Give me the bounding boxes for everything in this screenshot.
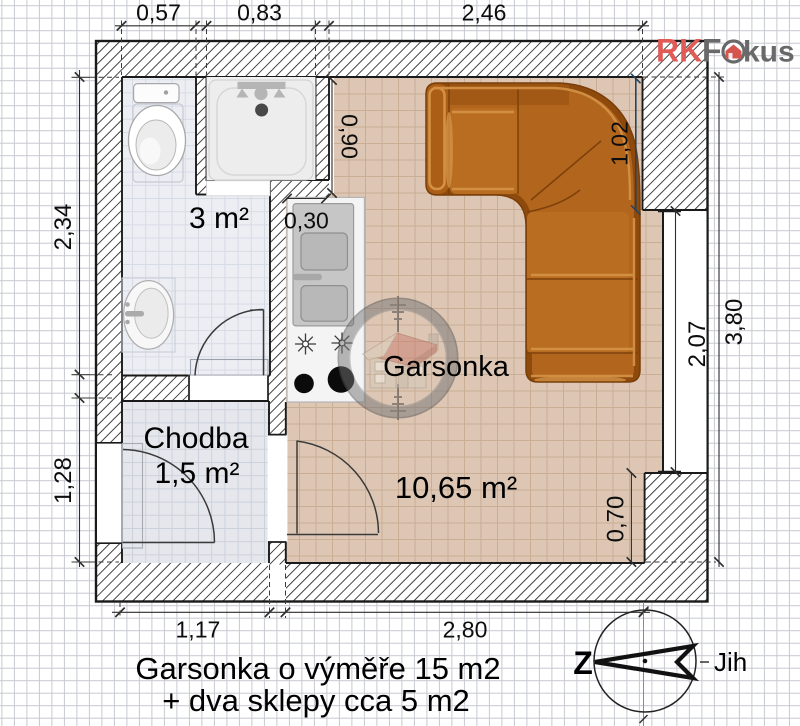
svg-text:1,5 m²: 1,5 m² xyxy=(154,457,239,490)
svg-text:Garsonka o výměře 15 m2: Garsonka o výměře 15 m2 xyxy=(135,651,500,686)
svg-text:2,34: 2,34 xyxy=(50,204,77,251)
svg-text:3 m²: 3 m² xyxy=(189,202,249,235)
svg-text:1,28: 1,28 xyxy=(50,457,77,504)
svg-text:Chodba: Chodba xyxy=(143,422,248,455)
svg-text:+ dva sklepy cca 5 m2: + dva sklepy cca 5 m2 xyxy=(162,683,470,718)
svg-text:Z: Z xyxy=(573,645,593,681)
svg-text:F: F xyxy=(702,33,722,69)
svg-text:2,46: 2,46 xyxy=(462,0,507,26)
svg-text:10,65 m²: 10,65 m² xyxy=(395,470,517,505)
svg-text:3,80: 3,80 xyxy=(721,299,748,346)
svg-text:RK: RK xyxy=(656,33,702,69)
svg-text:Garsonka: Garsonka xyxy=(383,351,510,383)
svg-text:2,07: 2,07 xyxy=(684,321,711,368)
svg-text:0,30: 0,30 xyxy=(284,207,329,233)
svg-text:Jih: Jih xyxy=(714,647,747,677)
svg-text:0,70: 0,70 xyxy=(603,496,630,543)
svg-text:0,90: 0,90 xyxy=(337,114,363,159)
svg-text:2,80: 2,80 xyxy=(443,617,488,643)
svg-text:0,57: 0,57 xyxy=(136,0,181,26)
svg-text:1,02: 1,02 xyxy=(607,121,633,166)
svg-text:0,83: 0,83 xyxy=(237,0,282,26)
svg-text:kus: kus xyxy=(743,36,795,69)
svg-text:1,17: 1,17 xyxy=(176,617,221,643)
